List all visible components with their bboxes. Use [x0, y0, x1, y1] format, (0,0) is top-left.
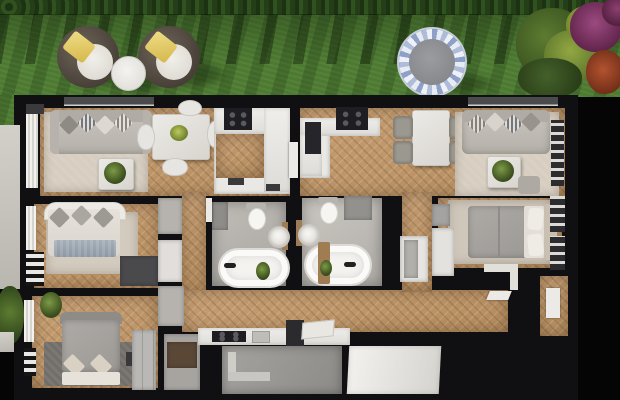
floor-mat: [228, 178, 244, 185]
wardrobe-column: [132, 330, 156, 390]
cutting-board: [301, 319, 335, 339]
tub-faucet: [344, 262, 356, 267]
dining-table-middle: [412, 110, 450, 166]
floor-mat: [266, 184, 280, 191]
brown-cabinet: [167, 342, 197, 368]
hall-closet: [158, 198, 182, 234]
coffee-table-plant: [104, 162, 126, 184]
cooktop-left: [224, 108, 252, 130]
bathtub-right: [304, 244, 372, 286]
dining-centerpiece: [170, 125, 188, 141]
white-closet: [432, 228, 454, 276]
tub-faucet: [224, 263, 236, 268]
shrub-green-dark: [518, 58, 582, 98]
dining-chair: [162, 158, 188, 176]
bath-plant: [256, 262, 270, 280]
bathroom-left-door: [206, 198, 212, 222]
shower-cabinet: [344, 196, 372, 220]
bed-right: [468, 202, 558, 262]
window-bedroom-left-lower: [24, 300, 34, 342]
corridor-door-leaf: [486, 291, 512, 300]
radiator: [24, 348, 36, 376]
bed-upper: [44, 202, 124, 260]
hall-closet: [158, 286, 184, 326]
bath-plant: [320, 260, 332, 276]
shelf-wardrobe: [550, 196, 565, 232]
shelf-wardrobe: [550, 236, 565, 270]
trampoline-mat: [409, 39, 455, 85]
bed-lower: [58, 312, 124, 386]
toilet-bowl: [248, 208, 266, 230]
washbasin: [298, 224, 320, 246]
toilet-bowl: [320, 202, 338, 224]
striped-wardrobe: [26, 252, 44, 286]
dining-chair: [178, 100, 202, 116]
floor-plan-render: [0, 0, 620, 400]
window-living-left: [26, 114, 38, 188]
counter-sink: [252, 331, 270, 343]
washbasin: [268, 226, 290, 248]
bath-cabinet: [212, 202, 228, 230]
sofa-right: [462, 110, 550, 154]
step-edge: [228, 372, 270, 381]
window-bedroom-left-upper: [26, 206, 36, 250]
kitchen-counter-right: [264, 108, 290, 192]
cooktop-entry: [212, 331, 246, 342]
pavement-left: [0, 125, 20, 289]
dresser: [120, 256, 158, 286]
wicker-lounge-chair: [57, 26, 119, 88]
tall-appliance: [305, 122, 321, 154]
door-between-units: [289, 142, 298, 178]
corridor-floor: [182, 290, 508, 332]
bed-base: [62, 372, 120, 385]
coffee-table-plant: [492, 160, 514, 182]
duvet-seam: [498, 206, 500, 258]
terrace-door-right: [468, 97, 558, 106]
pavement-left-lower: [0, 332, 14, 352]
shrub-bed: [518, 0, 620, 97]
cooktop-middle: [336, 107, 368, 130]
blue-blanket: [54, 240, 116, 257]
terrace-door-left: [64, 97, 154, 106]
kitchen-floor-inset: [216, 134, 264, 178]
window-bench-right: [551, 120, 564, 186]
ottoman: [518, 176, 540, 194]
concrete-landing: [222, 346, 342, 394]
bathtub-left: [218, 248, 290, 288]
dining-chair-gray: [393, 116, 413, 139]
curtain-block: [26, 104, 44, 114]
right-hall-door: [546, 288, 560, 318]
bed-pillow: [527, 233, 544, 256]
shrub-red: [586, 50, 620, 94]
gray-cabinet: [432, 204, 450, 226]
bed-pillow: [527, 207, 544, 230]
hallway-left-floor: [182, 192, 206, 294]
white-wall-corner: [510, 264, 518, 290]
dining-chair-gray: [393, 141, 413, 164]
hall-closet-white: [158, 240, 182, 282]
white-ramp-panel: [347, 346, 442, 394]
dining-chair: [137, 124, 155, 150]
wicker-lounge-chair: [138, 26, 200, 88]
cabinet-inner: [404, 240, 418, 278]
trampoline: [399, 29, 465, 95]
sofa-arm: [50, 110, 59, 154]
round-side-table: [111, 56, 146, 91]
